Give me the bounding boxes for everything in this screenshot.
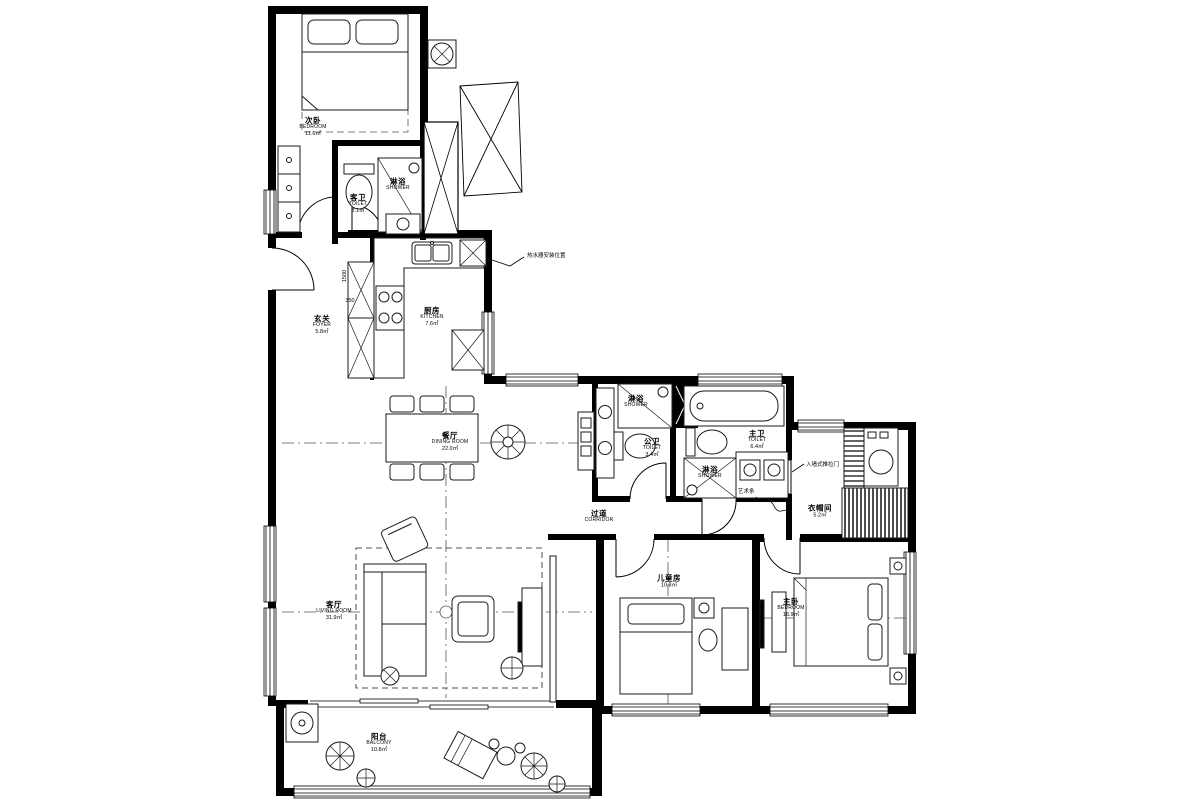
room-area: 16.9㎡ [777,612,804,618]
lounge-chair [444,732,497,779]
vanity-public [596,388,614,478]
room-area: 22.0㎡ [432,446,469,452]
floor-plan-drawing [0,0,1200,800]
chair-kids [699,629,717,651]
water-heater-icon [460,240,486,266]
duct-shaft [424,122,458,234]
nightstand-master-bottom [890,668,906,684]
room-label-toilet-guest: 客卫 TOILET 3.1㎡ [349,194,368,214]
accent-chair [380,516,429,563]
plant-icon-b1 [326,742,354,770]
tv-console [518,588,542,666]
annotation-pocket-door: 入墙式推拉门 [806,460,839,468]
room-name-en: SHOWER [386,186,410,192]
room-label-master-bedroom: 主卧 BEDROOM 16.9㎡ [777,598,804,618]
room-label-dining: 餐厅 DINING ROOM 22.0㎡ [432,432,469,452]
dimension-1500: 1500 [342,270,348,282]
room-area: 31.9㎡ [316,615,352,621]
window-master-bottom [770,704,888,716]
bed-kids [620,598,692,694]
room-label-toilet-public: 公卫 TOILET 3.4㎡ [643,438,662,458]
room-label-shower-public: 淋浴 SHOWER [624,395,648,409]
wardrobe-hatch-b [844,428,864,488]
window-masterbath-top [698,374,782,386]
window-kids-bottom [612,704,700,716]
room-label-balcony: 阳台 BALCONY 10.8㎡ [366,733,391,753]
room-area: 10.8㎡ [366,747,391,753]
room-label-kids: 儿童房 10.8㎡ [657,575,681,590]
stool-icon [428,40,456,68]
plant-icon-living [501,657,523,679]
walls [268,6,916,796]
sink-guest [386,214,420,234]
window-entry-opening [266,248,278,290]
stove-icon [376,286,404,330]
plant-icon-b4 [549,776,565,792]
room-area: 5.8㎡ [313,329,331,335]
window-cloakroom-top [798,420,844,432]
floor-lamp [381,667,399,685]
public-toilet-door [630,463,666,499]
room-area: 10.8㎡ [657,583,681,589]
room-label-kitchen: 厨房 KITCHEN 7.6㎡ [420,307,443,327]
room-area: 3.1㎡ [349,208,368,214]
room-label-toilet-master: 主卫 TOILET 6.4㎡ [748,430,767,450]
master-bedroom-door [764,538,800,574]
toilet-icon-master [686,428,727,456]
room-name-en: SHOWER [624,403,648,409]
tv-master [760,600,764,648]
washer-balcony [286,704,318,742]
annotation-art-strip: 艺术条 [738,487,755,495]
coffee-table [452,596,494,642]
sideboard [578,412,594,470]
entry-door [272,248,314,290]
kitchen-sink [412,242,452,265]
dimension-350: 350 [345,298,354,304]
plant-icon-b3 [521,753,547,779]
window-dining-top [506,374,578,386]
room-area: 11.6㎡ [299,131,326,137]
room-label-cloakroom: 衣帽间 5.2㎡ [808,505,832,520]
room-area: 6.4㎡ [748,444,767,450]
wardrobe-hatch-a [842,488,908,538]
window-bedroom2-left [264,190,276,234]
window-balcony-rail [294,786,590,798]
plant-icon-dining [491,425,525,459]
master-bath-door [702,499,736,535]
bed-master [794,578,888,666]
bathtub-icon [684,386,784,426]
window-living-left-2 [264,608,276,696]
room-area: 7.6㎡ [420,321,443,327]
plant-icon-b2 [357,769,375,787]
foyer-cabinet [348,262,374,378]
bed-double-small [302,14,408,110]
kids-room-door [616,539,654,577]
sofa-icon [364,564,426,676]
window-living-left-1 [264,526,276,602]
wardrobe-bedroom2 [278,146,300,232]
bedroom2-door [298,197,336,235]
room-name-en: CORRIDOR [585,518,614,524]
room-name-en: SHOWER [698,474,722,480]
floor-plan: 次卧 BEDROOM 11.6㎡ 淋浴 SHOWER 客卫 TOILET 3.1… [0,0,1200,800]
nightstand-master-top [890,558,906,574]
media-half-wall [550,556,556,702]
room-label-living: 客厅 LIVING ROOM 31.9㎡ [316,601,352,621]
room-label-corridor: 过道 CORRIDOR [585,510,614,524]
room-label-shower-guest: 淋浴 SHOWER [386,178,410,192]
washer-icon [864,428,898,486]
annotation-water-heater: 热水器安装位置 [527,251,566,259]
flue-unit [460,82,522,196]
room-label-bedroom2: 次卧 BEDROOM 11.6㎡ [299,117,326,137]
nightstand-kids [694,598,714,618]
room-label-shower-master: 淋浴 SHOWER [698,466,722,480]
room-area: 3.4㎡ [643,452,662,458]
room-label-foyer: 玄关 FOYER 5.8㎡ [313,315,331,335]
room-area: 5.2㎡ [808,513,832,519]
fridge-icon [452,330,484,370]
balcony-sliding-door [310,699,554,709]
desk-kids [722,608,748,670]
